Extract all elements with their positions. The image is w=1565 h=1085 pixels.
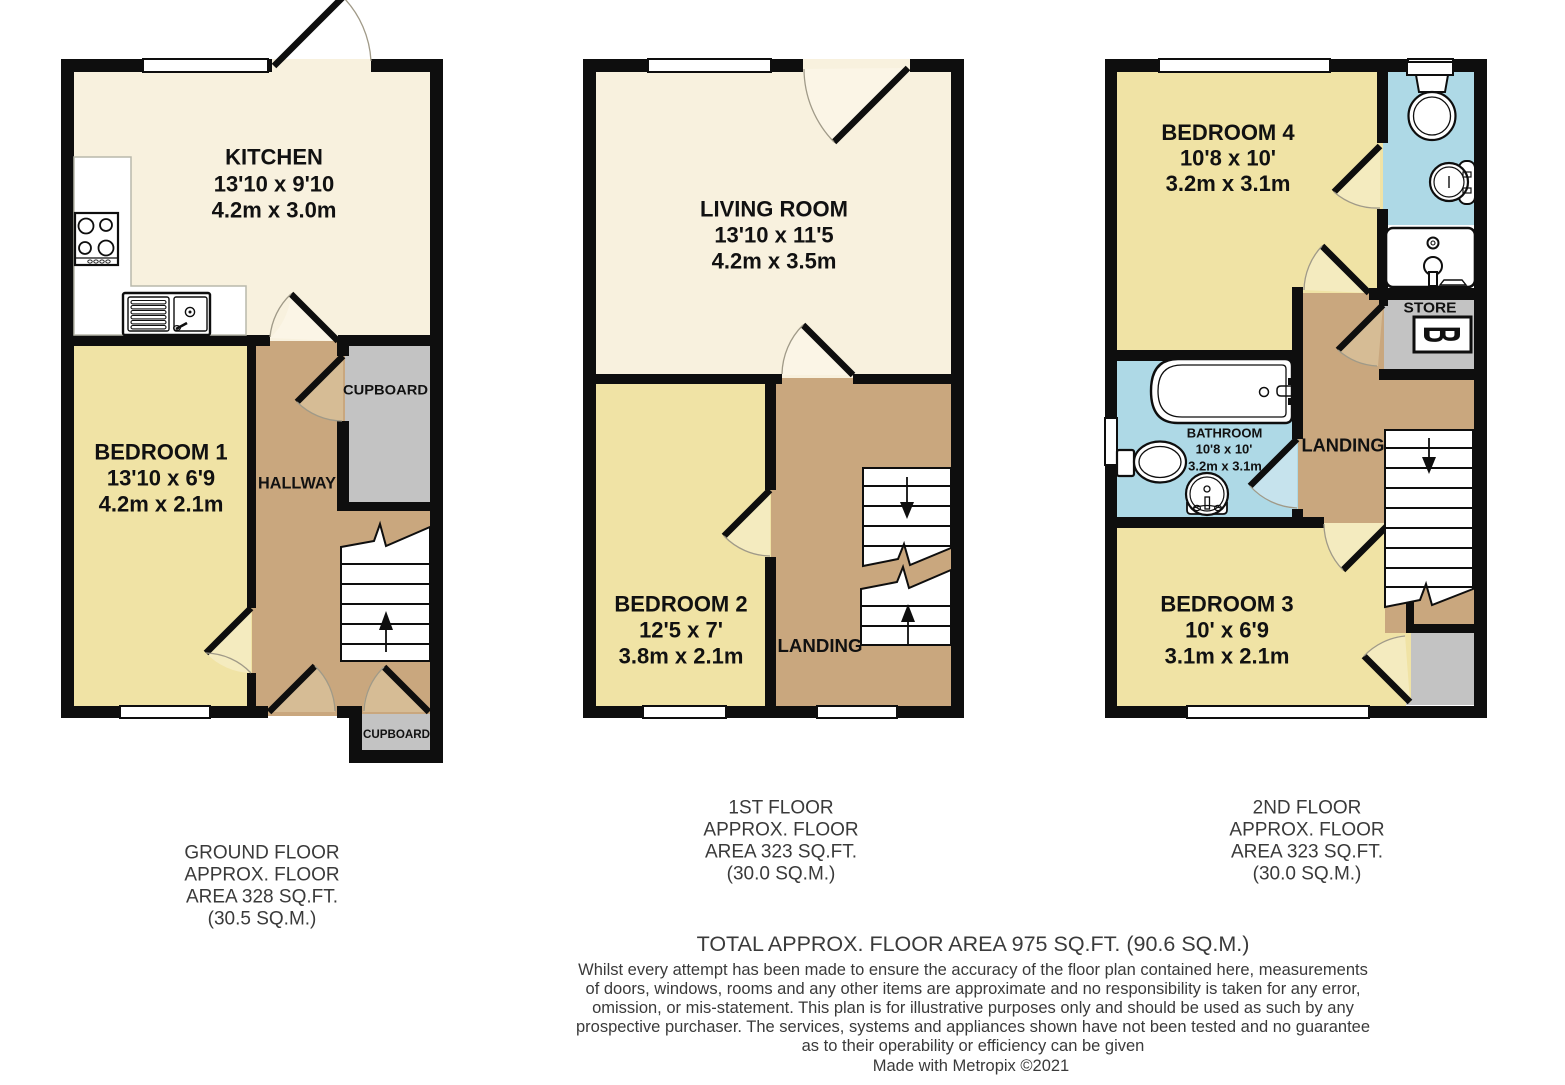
svg-text:(30.0 SQ.M.): (30.0 SQ.M.) xyxy=(727,864,836,885)
svg-text:APPROX. FLOOR: APPROX. FLOOR xyxy=(1229,820,1384,841)
svg-text:13'10 x 11'5: 13'10 x 11'5 xyxy=(714,223,833,248)
svg-text:HALLWAY: HALLWAY xyxy=(258,474,337,493)
svg-text:CUPBOARD: CUPBOARD xyxy=(343,382,428,398)
svg-text:(30.0 SQ.M.): (30.0 SQ.M.) xyxy=(1253,864,1362,885)
svg-text:omission, or mis-statement. Th: omission, or mis-statement. This plan is… xyxy=(592,999,1355,1017)
svg-text:Made with Metropix ©2021: Made with Metropix ©2021 xyxy=(873,1057,1070,1075)
svg-text:LANDING: LANDING xyxy=(778,636,863,656)
svg-text:STORE: STORE xyxy=(1404,300,1457,317)
svg-text:3.2m x 3.1m: 3.2m x 3.1m xyxy=(1188,459,1262,474)
svg-text:GROUND FLOOR: GROUND FLOOR xyxy=(184,843,339,864)
svg-text:4.2m x 2.1m: 4.2m x 2.1m xyxy=(99,492,224,517)
svg-text:4.2m x 3.0m: 4.2m x 3.0m xyxy=(212,198,337,223)
svg-text:10'8 x 10': 10'8 x 10' xyxy=(1180,146,1276,171)
svg-text:13'10 x 6'9: 13'10 x 6'9 xyxy=(107,466,215,491)
svg-text:BEDROOM 3: BEDROOM 3 xyxy=(1160,592,1293,617)
svg-text:10'8 x 10': 10'8 x 10' xyxy=(1196,442,1253,457)
svg-text:BEDROOM 1: BEDROOM 1 xyxy=(94,440,227,465)
svg-text:APPROX. FLOOR: APPROX. FLOOR xyxy=(703,820,858,841)
svg-text:AREA 323 SQ.FT.: AREA 323 SQ.FT. xyxy=(1231,842,1383,863)
svg-text:LIVING ROOM: LIVING ROOM xyxy=(700,197,848,222)
svg-text:as to their operability or eff: as to their operability or efficiency ca… xyxy=(802,1037,1145,1055)
svg-text:APPROX. FLOOR: APPROX. FLOOR xyxy=(184,865,339,886)
svg-text:10' x 6'9: 10' x 6'9 xyxy=(1185,618,1269,643)
svg-text:prospective purchaser. The ser: prospective purchaser. The services, sys… xyxy=(576,1018,1370,1036)
svg-text:4.2m x 3.5m: 4.2m x 3.5m xyxy=(712,249,837,274)
svg-text:LANDING: LANDING xyxy=(1302,436,1385,456)
svg-text:1ST FLOOR: 1ST FLOOR xyxy=(728,798,833,819)
svg-text:B: B xyxy=(1412,326,1471,343)
svg-text:2ND FLOOR: 2ND FLOOR xyxy=(1253,798,1362,819)
svg-text:AREA 328 SQ.FT.: AREA 328 SQ.FT. xyxy=(186,887,338,908)
svg-text:CUPBOARD: CUPBOARD xyxy=(363,727,430,741)
svg-text:Whilst every attempt has been: Whilst every attempt has been made to en… xyxy=(578,961,1368,979)
svg-text:3.8m x 2.1m: 3.8m x 2.1m xyxy=(619,644,744,669)
svg-text:of doors, windows, rooms and a: of doors, windows, rooms and any other i… xyxy=(586,980,1361,998)
svg-text:BATHROOM: BATHROOM xyxy=(1187,426,1263,441)
svg-text:13'10 x 9'10: 13'10 x 9'10 xyxy=(214,172,335,197)
svg-text:TOTAL APPROX. FLOOR AREA 975 S: TOTAL APPROX. FLOOR AREA 975 SQ.FT. (90.… xyxy=(697,932,1250,956)
svg-text:AREA 323 SQ.FT.: AREA 323 SQ.FT. xyxy=(705,842,857,863)
svg-text:(30.5 SQ.M.): (30.5 SQ.M.) xyxy=(208,909,317,930)
svg-text:BEDROOM 4: BEDROOM 4 xyxy=(1161,120,1295,145)
svg-text:3.1m x 2.1m: 3.1m x 2.1m xyxy=(1165,644,1290,669)
svg-text:12'5 x 7': 12'5 x 7' xyxy=(639,618,723,643)
svg-text:BEDROOM 2: BEDROOM 2 xyxy=(614,592,747,617)
svg-text:KITCHEN: KITCHEN xyxy=(225,145,323,170)
svg-text:3.2m x 3.1m: 3.2m x 3.1m xyxy=(1166,171,1291,196)
